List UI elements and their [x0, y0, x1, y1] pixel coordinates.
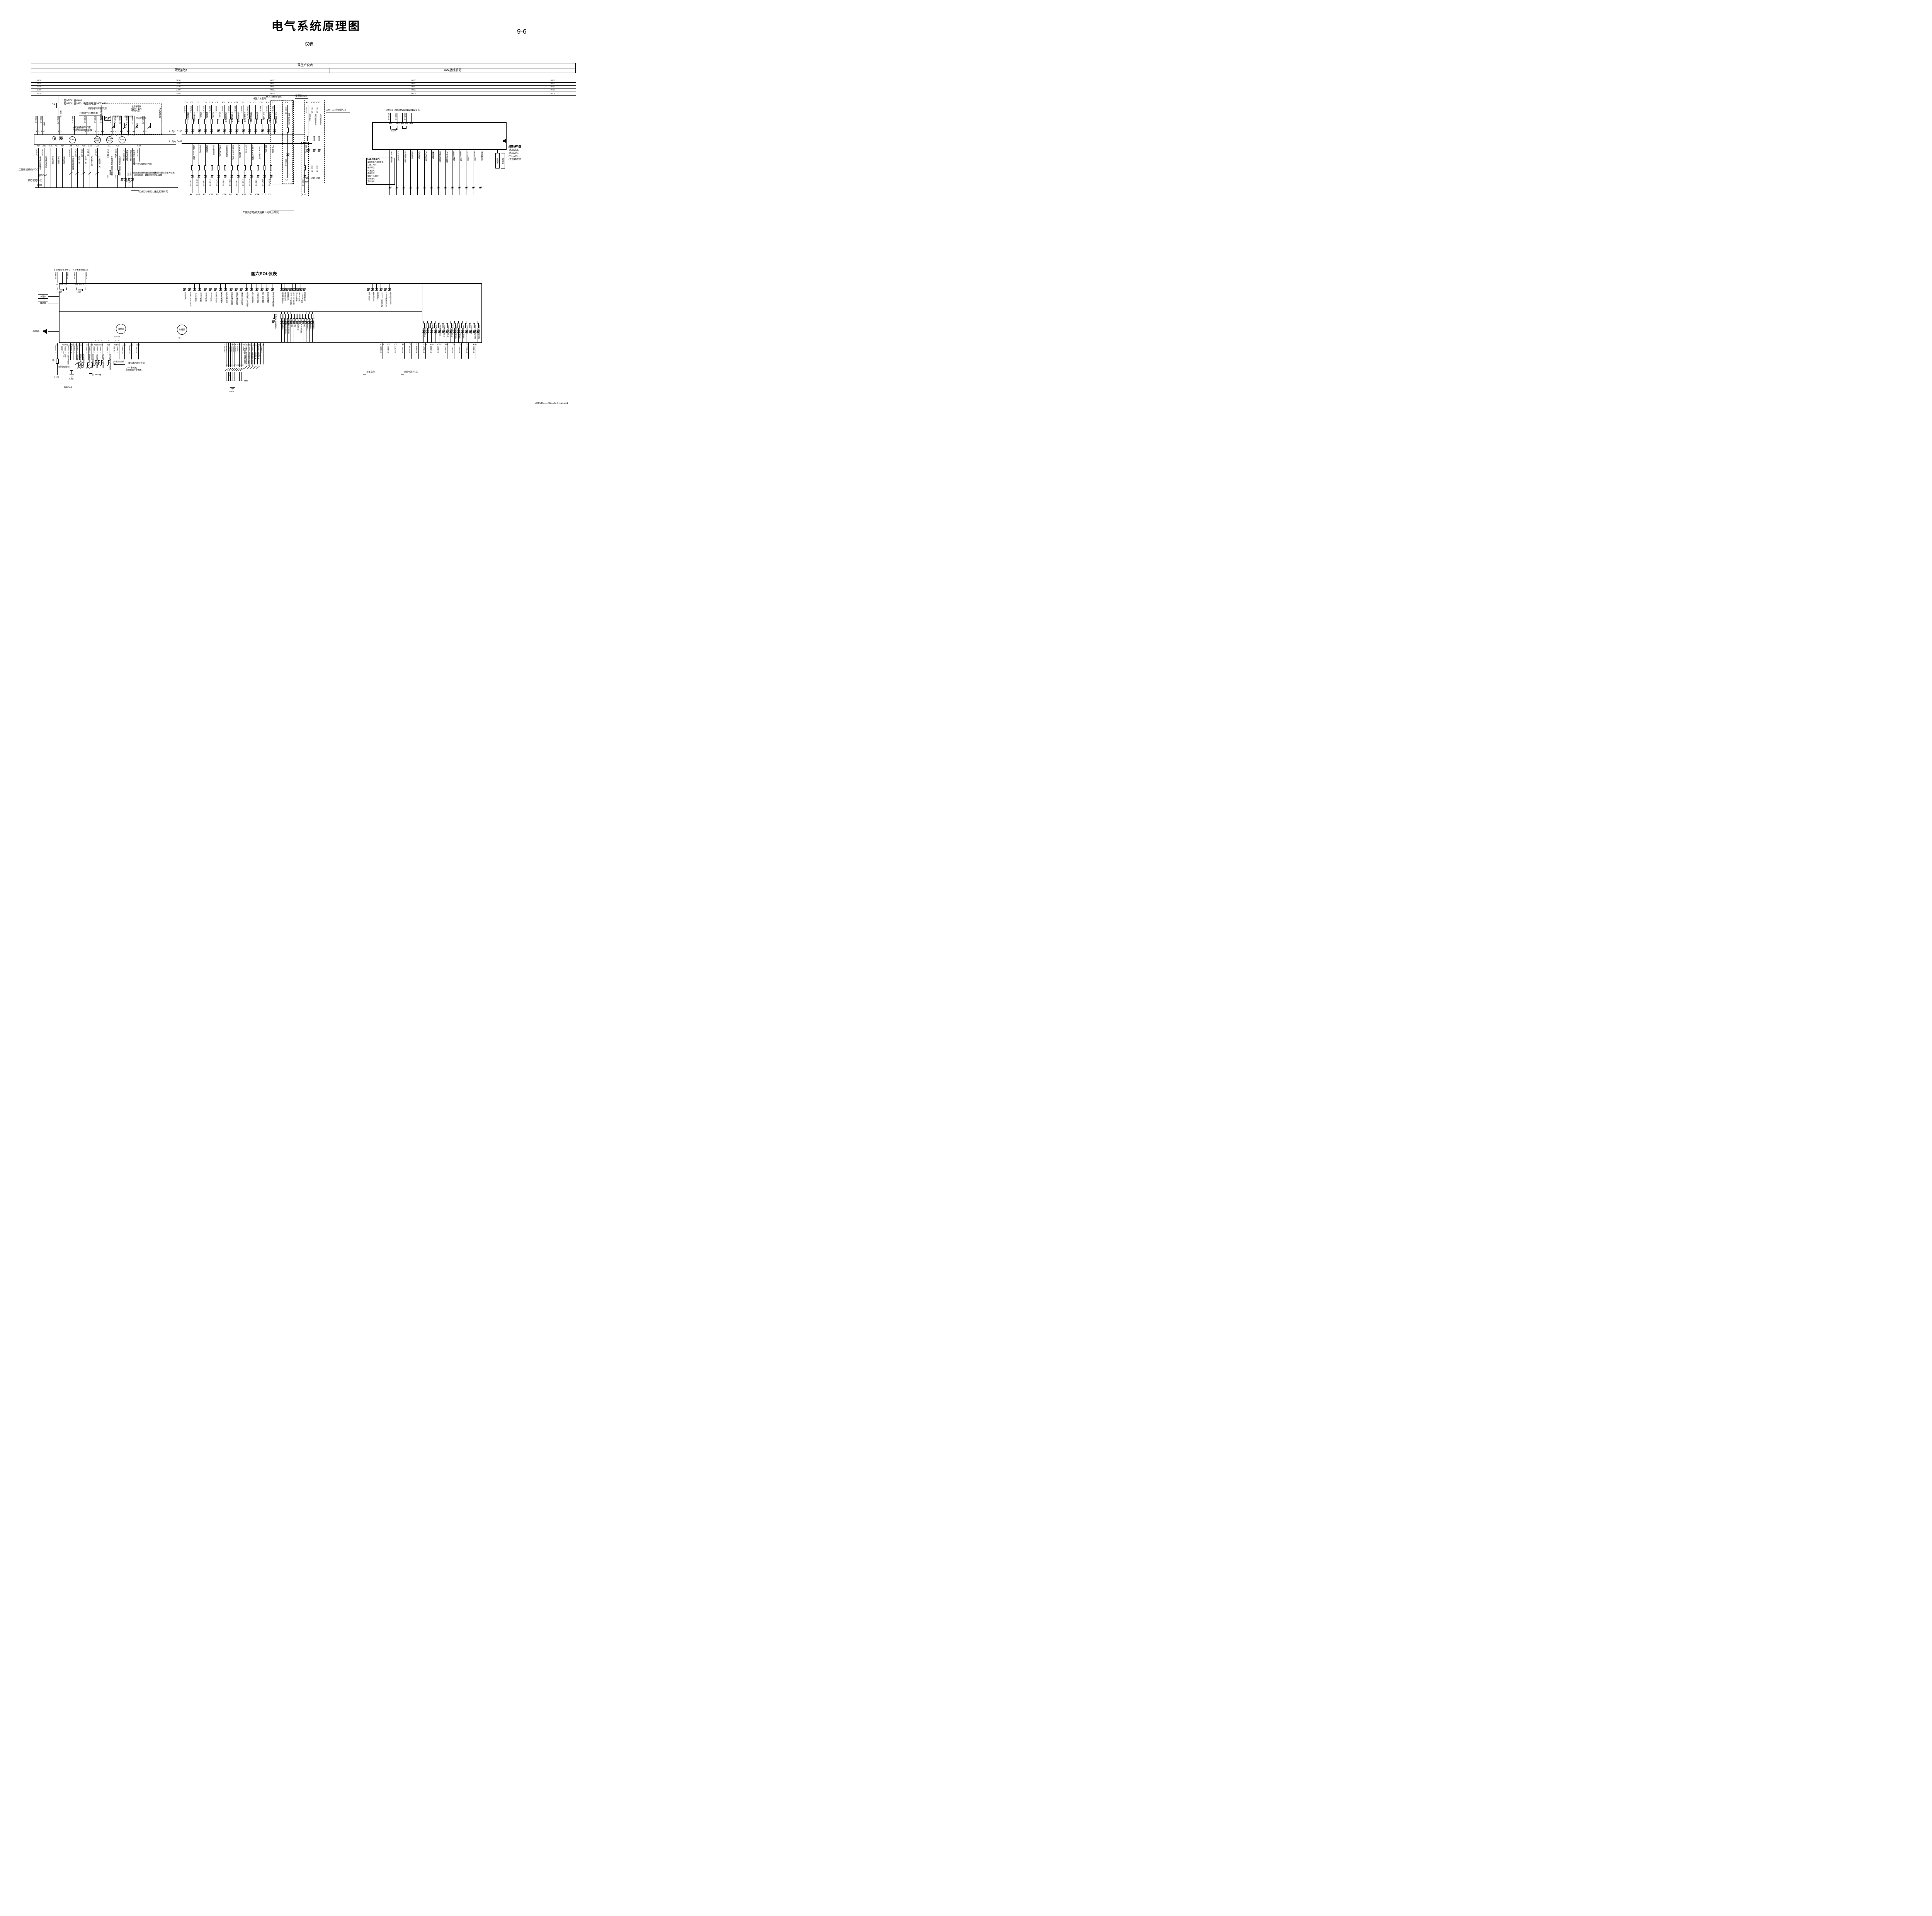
can-loop2	[402, 128, 406, 129]
eol-can-indicator: DPF指示	[298, 292, 300, 301]
row2-indicator-label: ECAS警告灯	[258, 145, 260, 160]
bus-wire-label: 0260	[270, 89, 275, 91]
rail2-name: A18(+)	[169, 141, 176, 143]
ground-icon	[230, 387, 235, 390]
eol-left-gauge: 水温表	[38, 294, 48, 299]
terminal-mark: +	[98, 340, 99, 342]
pin-wire	[128, 116, 129, 134]
led-icon	[217, 175, 220, 178]
fuse-body	[56, 103, 59, 108]
can-wire	[406, 113, 407, 122]
can-indicator-label: MIL指示	[466, 151, 468, 161]
pin-wire	[37, 116, 38, 134]
row2-indicator-label: 低档指示	[199, 145, 201, 153]
row2-pin: C5	[269, 194, 271, 196]
pad-serial-note: 左右两侧的制动蹄片磨损传感器分别串联后接入仪表, 线号分别以14AX、14BX依…	[128, 172, 175, 177]
eolb-wire-label: 1306 0.5	[444, 346, 446, 353]
pad-tag: 14A0	[107, 154, 109, 158]
row2-indicator-label: 充电指示	[265, 145, 267, 153]
row1-wire-label: 1322 0.5	[221, 106, 223, 112]
eolb-pin: C26	[380, 344, 384, 346]
pin-wire	[112, 116, 112, 134]
eolb-wire	[433, 343, 433, 359]
row2-indicator-label: 驻车制动指示	[225, 145, 227, 157]
eolb-wire-label: 1424 0.5	[89, 346, 90, 352]
can-wire-label: 0020 0.5	[395, 113, 396, 120]
led-icon	[190, 175, 194, 178]
row1-pin: C18	[247, 102, 251, 104]
resistor	[244, 165, 246, 170]
wire-line	[58, 290, 66, 290]
below-wire-label: 1409 0.5	[36, 149, 37, 156]
gnd-label-2: GND	[230, 391, 234, 393]
wire-line	[85, 288, 85, 290]
led-icon	[451, 186, 454, 190]
pin-mark: S	[133, 134, 134, 136]
engine-schematic-note: 按发动机原理接	[266, 96, 282, 99]
eolb-pin: C10	[388, 344, 391, 346]
eol-can-indicator: 灯丝检测	[184, 292, 186, 299]
ecas-note: 接ECAS	[39, 175, 47, 177]
resistor	[204, 119, 206, 124]
trailer-ind-note: 挂车指示	[366, 371, 375, 373]
row2-pin: C16	[223, 194, 226, 196]
eol-can-indicator: ECAS失效灯	[290, 292, 292, 305]
below-wire	[62, 148, 63, 187]
eolb-wire-label: 0100 0.75	[70, 346, 72, 354]
variable-resistor	[113, 123, 115, 128]
header-vdivider	[330, 68, 330, 73]
eol-can-indicator: 驻车制动指示	[215, 292, 217, 303]
eolb-wire	[411, 343, 412, 359]
led-icon	[182, 288, 186, 291]
eolb-wire-label: 4288 0.5	[237, 346, 238, 352]
pto-note-leader	[270, 211, 294, 211]
led-icon	[426, 330, 429, 334]
pto-dashed-box	[304, 100, 325, 183]
can-wire-label: 0014 0.5	[388, 113, 389, 120]
resistor	[307, 136, 309, 141]
row1-wire-label: 0305/0308/0310	[247, 106, 248, 118]
switch-icon	[76, 172, 79, 175]
bus-line-0	[31, 82, 576, 83]
eol-can-indicator: ECAS警告灯	[293, 292, 294, 305]
led-icon	[208, 288, 212, 291]
can-indicator-label: PTO激活	[397, 151, 399, 161]
row1-wire-label: 0717 0.5	[190, 106, 191, 112]
lcd-item: 里程小计/累计	[367, 175, 379, 177]
led-icon	[409, 186, 412, 190]
row1-indicator-label: 挂车左转向	[237, 112, 239, 122]
resistor	[224, 165, 226, 170]
eolb-wire	[131, 343, 132, 359]
variable-resistor	[108, 360, 110, 365]
eolb-pin: C25	[423, 344, 427, 346]
bus-wire-label: 0260	[551, 89, 555, 91]
led-icon	[234, 288, 238, 291]
eol-can-wire	[62, 272, 63, 283]
eolb-wire	[241, 343, 241, 367]
variable-resistor	[124, 123, 126, 128]
variable-resistor	[149, 123, 151, 128]
eolb-wire	[404, 343, 405, 359]
eol-lamp-label: 前雾灯	[428, 325, 429, 330]
row1-indicator-label: 挂车右转向	[224, 112, 226, 122]
row2-wire-label: 1541 0.5	[202, 179, 204, 186]
row2-indicator-label: 门开报警	[271, 145, 273, 153]
pad-tap-label: R4	[241, 364, 243, 366]
pto-wire-label: 1503 0.5	[305, 107, 307, 113]
c4-pin: C4	[285, 102, 288, 104]
pad-lower-wire	[233, 372, 233, 381]
row1-pin: C25	[260, 102, 264, 104]
row1-indicator-label: 浮动桥报警	[250, 112, 252, 122]
pad-lower-wire	[239, 372, 240, 381]
led-icon	[191, 129, 194, 133]
eol-can-wire2: 0015 0.5	[85, 272, 87, 279]
led-icon	[185, 129, 188, 133]
pin-mark: S	[128, 134, 129, 136]
row2-pin: A9	[236, 194, 238, 196]
row2-indicator-label: 高档指示	[206, 145, 207, 153]
document-number: 3700001—91126, H191011	[535, 402, 568, 405]
resistor	[204, 165, 206, 170]
c4-pin2: C7	[286, 179, 288, 182]
row1-wire-label: 1103 0.5	[184, 106, 185, 112]
bus-wire-label: 0250	[176, 80, 180, 82]
eol-left-gauge: 转速表	[38, 301, 48, 305]
eol-can-indicator: ASR指示	[195, 292, 197, 301]
pin-wire-label: 1413 0.5	[84, 116, 86, 123]
led-icon	[230, 175, 233, 178]
eolb-wire-label: 0717 0.5	[408, 346, 410, 353]
pin-wire-label: 1423 0.5	[114, 116, 116, 123]
led-icon	[366, 288, 370, 291]
terminal-mark: +	[115, 340, 116, 342]
gauge-drop	[497, 150, 498, 153]
below-wire	[71, 148, 71, 187]
eol-can-pin: A22	[83, 284, 87, 286]
pad-lower-wire	[237, 372, 237, 381]
row2-pin: C6	[249, 194, 252, 196]
below-device-label: 驻车制动开关	[98, 156, 100, 168]
eol-lamp-label: 进气预热指示灯	[447, 325, 449, 337]
eolb-wire-label: 1411 0.5	[113, 346, 115, 352]
led-icon	[375, 288, 378, 291]
led-icon	[213, 288, 217, 291]
eolb-wire-label: 0100 0.75	[68, 346, 69, 354]
led-icon	[219, 288, 222, 291]
can-indicator-label: 油中含水报警	[446, 151, 447, 163]
resistor	[231, 165, 233, 170]
can-indicator-label: 缓速器指示	[480, 151, 482, 161]
wire-line	[71, 370, 72, 374]
eol-can-indicator: ESC指示	[210, 292, 212, 301]
can-indicator-label: 等待起动指示	[439, 151, 440, 163]
resistor	[287, 128, 289, 133]
eolb-wire-label: 1423 0.5	[106, 346, 108, 352]
row1-pin: C21	[234, 102, 238, 104]
eolb-wire-label: 4275 0.5	[226, 346, 228, 352]
led-icon	[236, 175, 240, 178]
eolb-wire	[383, 343, 383, 359]
led-icon	[402, 186, 405, 190]
below-wire-label: 1418 0.75	[68, 149, 70, 157]
led-icon	[250, 175, 253, 178]
eolb-wire	[425, 343, 426, 359]
row1-wire-label: 4371 0.5	[259, 106, 261, 112]
can-gauge-box: 水温表	[495, 153, 500, 168]
resistor	[211, 165, 213, 170]
eol-lamp-label: 后视镜加热指示灯	[455, 325, 456, 339]
eolb-wire	[418, 343, 419, 359]
row1-pin: C10	[203, 102, 207, 104]
cluster-bottom-pin: C16	[96, 145, 99, 148]
below-device-label: 仪表电源-	[51, 156, 53, 166]
led-icon	[286, 153, 289, 157]
row2-pin: A27	[203, 194, 206, 196]
eol-can-indicator: 发动机制动	[284, 292, 286, 301]
led-icon	[471, 186, 475, 190]
cluster-bottom-pin: A19	[82, 145, 85, 148]
eol-can-indicator: 发动机维修报警	[231, 292, 233, 305]
eol-can-indicator: 油中含水报警	[262, 292, 264, 303]
eolb-wire-label: 0302 0.5	[416, 346, 417, 353]
row2-wire-label: 1542 0.5	[196, 179, 197, 186]
eolb-device-label: 油量传感器	[88, 354, 90, 363]
buzzer-title: 报警蜂鸣器	[509, 145, 521, 148]
pin-wire	[60, 116, 60, 134]
led-icon	[306, 149, 310, 152]
eolb-wire-label: 5290 0.5	[73, 346, 75, 352]
can-signal-label: CAN-M	[395, 110, 401, 112]
row1-indicator-label: 近光灯	[212, 112, 214, 118]
cluster-bottom-pin: A1	[108, 145, 111, 148]
pad-lower-gauge: 0. 75	[229, 373, 230, 376]
c4-wire-label: 0553 0.5	[285, 107, 286, 114]
eolb-wire	[468, 343, 469, 359]
power6-leader	[401, 374, 404, 374]
wire-line	[406, 126, 407, 128]
led-icon	[416, 186, 419, 190]
can-indicator-label: 水温过高报警	[390, 151, 392, 163]
bus-line-3	[31, 92, 576, 92]
bus-wire-label: 0270	[176, 86, 180, 88]
rail1-name: A17(-)	[169, 131, 175, 133]
wire-line	[66, 288, 67, 290]
speaker-icon	[43, 329, 48, 334]
vdo-note: 接行驶记录仪(VDO)	[19, 169, 39, 172]
led-icon	[197, 175, 201, 178]
led-icon	[245, 288, 248, 291]
row2-wire-label: 4356 0.5	[248, 179, 250, 186]
terminal-mark: S	[118, 340, 119, 342]
row1-indicator-label: 空气悬架	[262, 112, 264, 120]
eolb-wire	[397, 343, 397, 359]
eol-can-indicator: 胎压过低报警	[267, 292, 269, 303]
pin-wire	[121, 116, 122, 134]
pin-wire-label: 1412 0.75	[142, 116, 144, 124]
eolb-wire-label: 4270 0.5	[230, 346, 232, 352]
non-g6-note: 非国六车型用	[253, 98, 266, 100]
eol-lamp-label: 后雾灯	[432, 325, 433, 330]
eolb-wire-label: 1418 0.5	[242, 346, 244, 352]
led-icon	[388, 186, 391, 190]
eolb-wire-label: 0401 1.0	[54, 346, 56, 352]
can-indicator-label: 巡航指示	[411, 151, 413, 159]
pin-wire-label: 0401 0.5	[35, 116, 37, 123]
buzzer-item: -气压过低	[509, 155, 519, 158]
can-signal-label: CAN-H	[386, 110, 393, 112]
pad-lower-wire	[235, 372, 235, 381]
eol-lamp-label: 干燥器指示灯	[439, 325, 441, 335]
row2-wire-label: 1418 0.5	[216, 179, 217, 186]
can-indicator-label: 发动机制动	[425, 151, 427, 161]
led-icon	[204, 175, 207, 178]
led-icon	[239, 288, 243, 291]
eolb-device-label: 水位传感器	[83, 354, 85, 363]
can-pin: A24	[410, 123, 413, 125]
led-icon	[464, 186, 468, 190]
switch-icon	[88, 172, 92, 175]
below-device-label: 高档开关	[78, 156, 80, 164]
led-icon	[131, 178, 134, 181]
lcd-item: 日期、时间	[367, 164, 376, 166]
eolb-wire-label: 1503 0.5	[401, 346, 403, 353]
loop3-note: 三回路气压显示用	[79, 112, 98, 115]
pin-wire	[87, 116, 87, 134]
pto-pin: C20	[311, 102, 315, 104]
led-icon	[267, 129, 270, 133]
led-icon	[395, 186, 398, 190]
page-title: 电气系统原理图	[272, 20, 361, 33]
led-icon	[229, 288, 233, 291]
pto-pin: C23	[316, 102, 320, 104]
row1-indicator-label: 仪表照明	[187, 112, 189, 120]
eol-can-indicator: 水位过低报警	[252, 292, 253, 303]
row2-wire-label: 1415 0.5	[209, 179, 211, 186]
below-wire-label: 1408 0.5	[95, 149, 97, 156]
eolb-pin: C22	[437, 344, 441, 346]
only-vecu-note: 仅VECU/EECU无此接线时用	[138, 191, 168, 194]
variable-resistor	[91, 362, 93, 368]
led-icon	[263, 175, 266, 178]
led-icon	[371, 288, 374, 291]
eolb-pin: A36	[430, 344, 434, 346]
can-indicator-label: 停机报警	[418, 151, 420, 159]
below-wire	[110, 148, 110, 187]
can-cluster-box	[372, 122, 507, 150]
eolb-wire	[57, 343, 58, 360]
pin-wire-label: 1420 0.5	[100, 116, 102, 123]
eolb-pin: C21	[466, 344, 469, 346]
below-wire	[117, 148, 118, 187]
row2-wire-label: 1408 0.5	[222, 179, 224, 186]
resistor	[270, 165, 272, 170]
eolb-switch-label: 空滤阻塞传感器	[245, 352, 247, 364]
led-icon	[203, 288, 207, 291]
eolb-wire-label: 0724 0.5	[258, 346, 259, 352]
cluster-gauge: 驻车回路气压表	[106, 136, 113, 143]
bus-line-2	[31, 88, 576, 89]
led-icon	[216, 129, 220, 133]
eol-can-indicator: 高半档指示	[372, 292, 374, 301]
can-indicator-label: EBS报警	[452, 151, 454, 161]
row2-wire-label: 1704 0.5	[229, 179, 230, 186]
eol-can-pin: A5	[56, 284, 58, 286]
pin-wire-label: 0291 0.5	[40, 116, 42, 123]
eolb-pin: C14	[452, 344, 455, 346]
below-wire-label: 1431 0.5	[41, 149, 43, 156]
eol-can-wire1: 0014 0.5	[74, 272, 75, 279]
eolb-wire	[454, 343, 454, 359]
eol-can-indicator: Acc工作指示灯	[381, 292, 383, 307]
led-icon	[478, 186, 482, 190]
row1-wire-label: 1305 0.5	[240, 106, 242, 112]
rail2-line	[182, 143, 312, 144]
speaker-icon	[502, 138, 508, 143]
led-icon	[437, 186, 440, 190]
row2-pin: A6	[229, 194, 231, 196]
lcd-drop	[377, 150, 377, 158]
row1-pin: C3	[197, 102, 199, 104]
rail-0100-label-a: 0100	[37, 184, 42, 187]
led-icon	[120, 178, 124, 181]
c20c23-note: C20、C23接仪表A18	[326, 109, 346, 111]
led-icon	[204, 129, 207, 133]
lcd-item: 累计油耗	[367, 180, 374, 182]
eolb-wire	[447, 343, 447, 359]
lcd-item: 电瓶电压	[367, 172, 374, 174]
bus-wire-label: 0290	[551, 83, 555, 85]
pto-bottom-pin: C11	[316, 178, 320, 180]
below-wire-label: 1541 0.75	[75, 149, 77, 157]
row1-wire-label: 1202 0.5	[196, 106, 198, 112]
pad-tag: 14B0	[115, 154, 116, 158]
row1-pin: C26	[184, 102, 188, 104]
note-leader	[131, 190, 139, 191]
bus-wire-label: 0260	[412, 89, 416, 91]
row1-indicator-label: 远光灯	[218, 112, 220, 118]
c4-wire2-label: 0554 0.5	[285, 159, 286, 166]
wire-line	[57, 364, 58, 375]
power-on-note: 接通指示用	[295, 95, 307, 98]
pin-wire	[117, 116, 117, 134]
eolb-wire-label: 1541 0.75	[248, 346, 250, 354]
pad-tag2: 14B1	[115, 175, 116, 179]
terminal-mark: S	[101, 340, 102, 342]
eolb-wire-label: 1413 0.5	[116, 346, 118, 352]
wire-line	[390, 126, 391, 129]
can-wire	[390, 113, 391, 122]
led-icon	[430, 186, 433, 190]
terminal-mark: -	[124, 340, 124, 342]
resistor	[250, 165, 252, 170]
led-icon	[312, 149, 316, 152]
row1-wire-label: 1321 0.5	[234, 106, 235, 112]
eolb-wire-label: 1417 0.5	[85, 346, 87, 352]
bus-wire-label: 0208	[412, 93, 416, 95]
led-icon	[193, 288, 196, 291]
row1-wire-label: 2002 0.5	[265, 106, 267, 112]
row1-indicator-label: 干燥器指示	[193, 112, 195, 122]
pin-wire-label: 1429 0.5	[126, 116, 128, 123]
led-icon	[248, 129, 251, 133]
eol-can-indicator: 低半档指示	[368, 292, 370, 301]
led-icon	[269, 175, 273, 178]
bus-wire-label: 0250	[551, 80, 555, 82]
cluster-title: 仪 表	[52, 136, 63, 141]
